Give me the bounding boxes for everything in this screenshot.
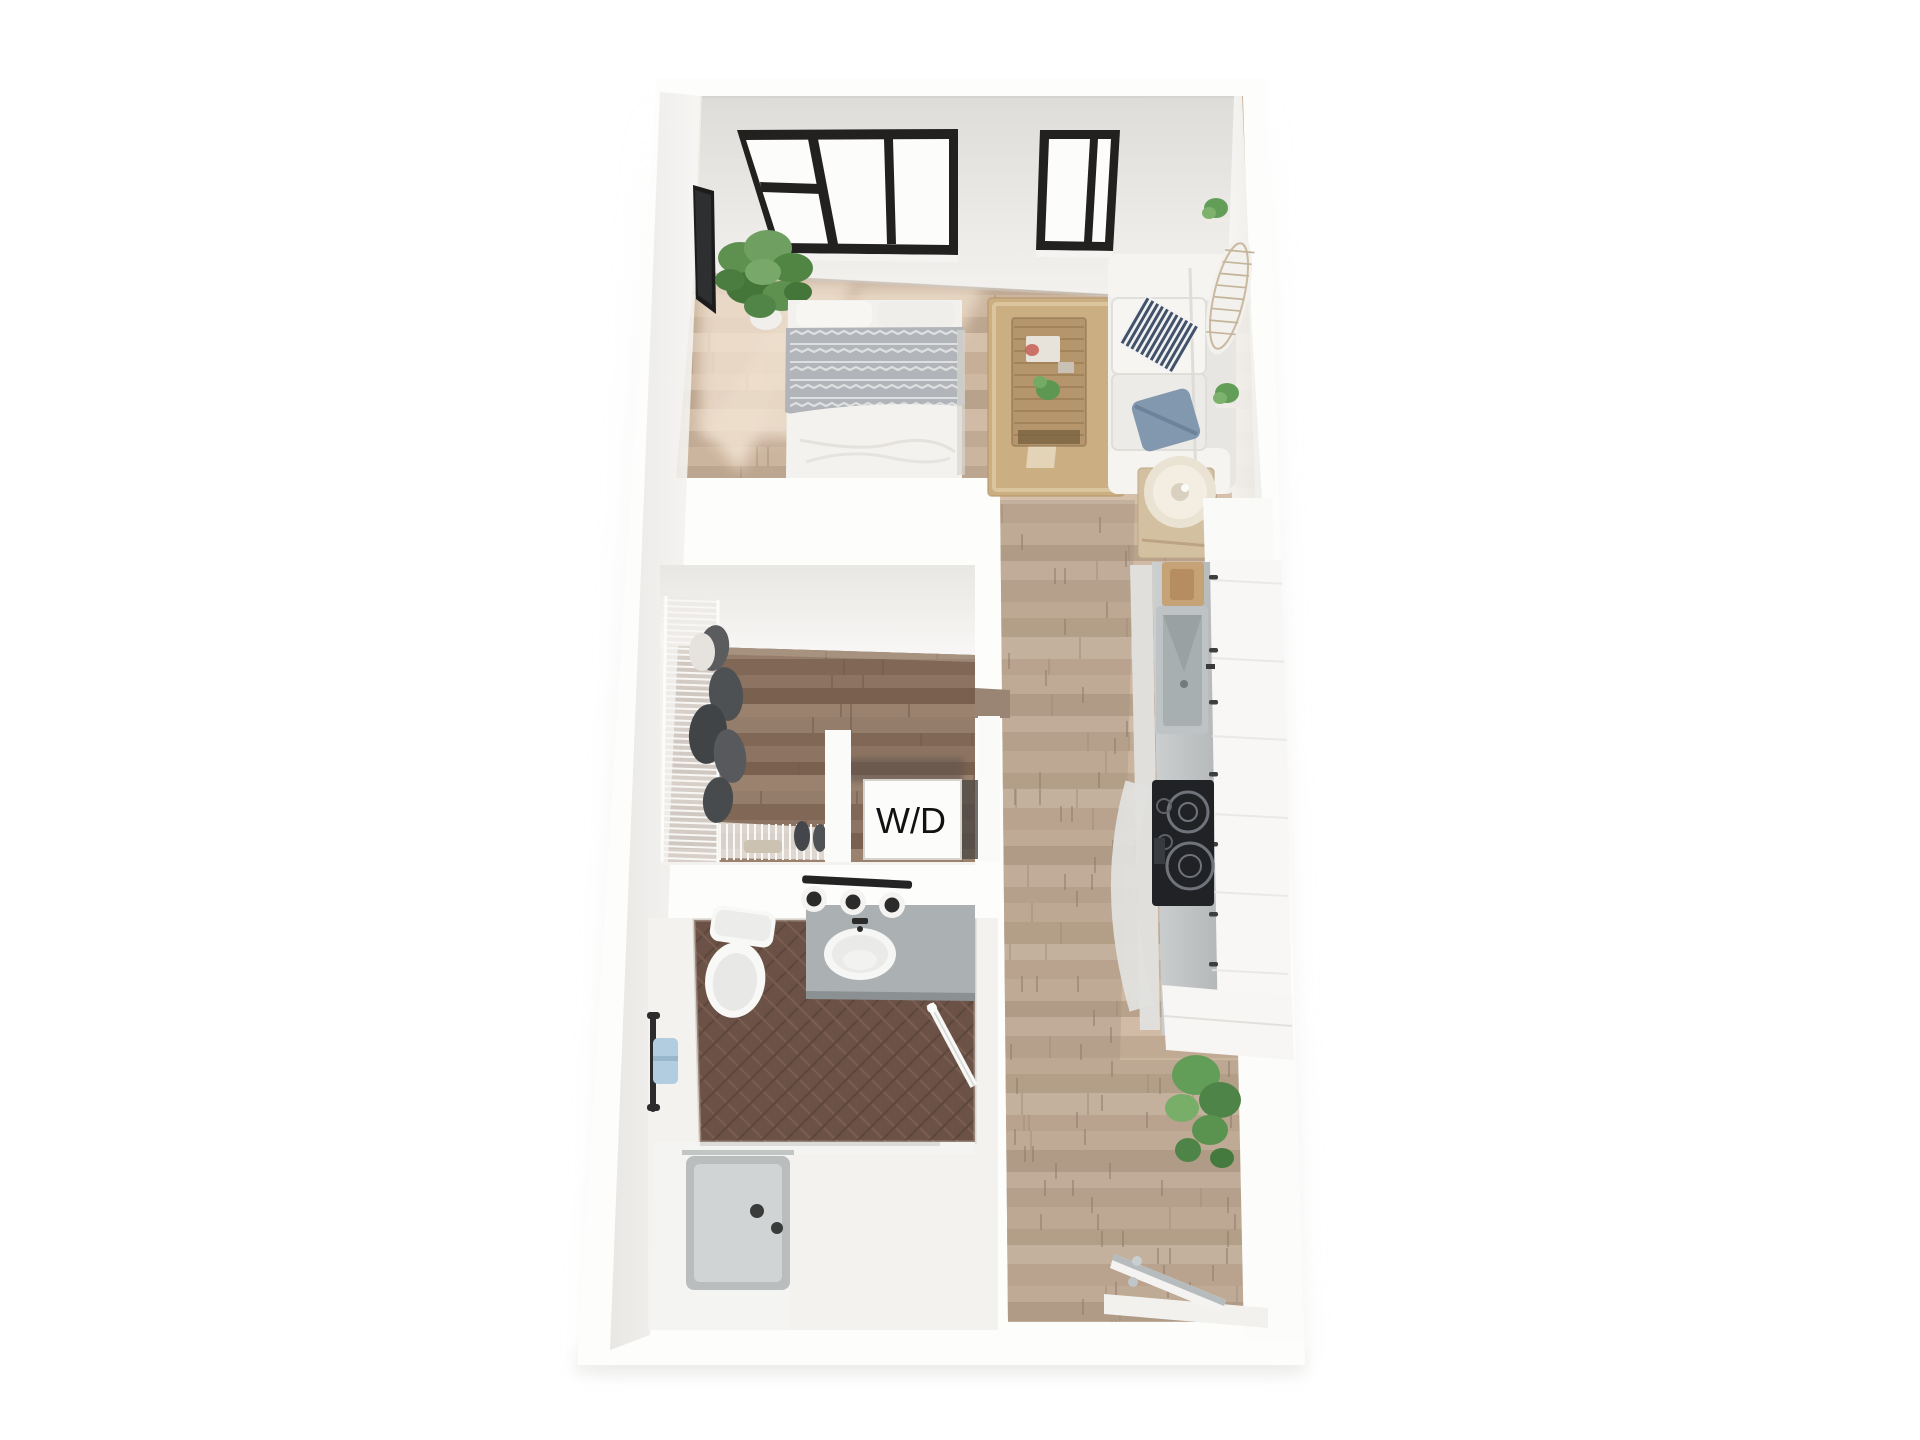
svg-text:W/D: W/D xyxy=(876,800,946,841)
